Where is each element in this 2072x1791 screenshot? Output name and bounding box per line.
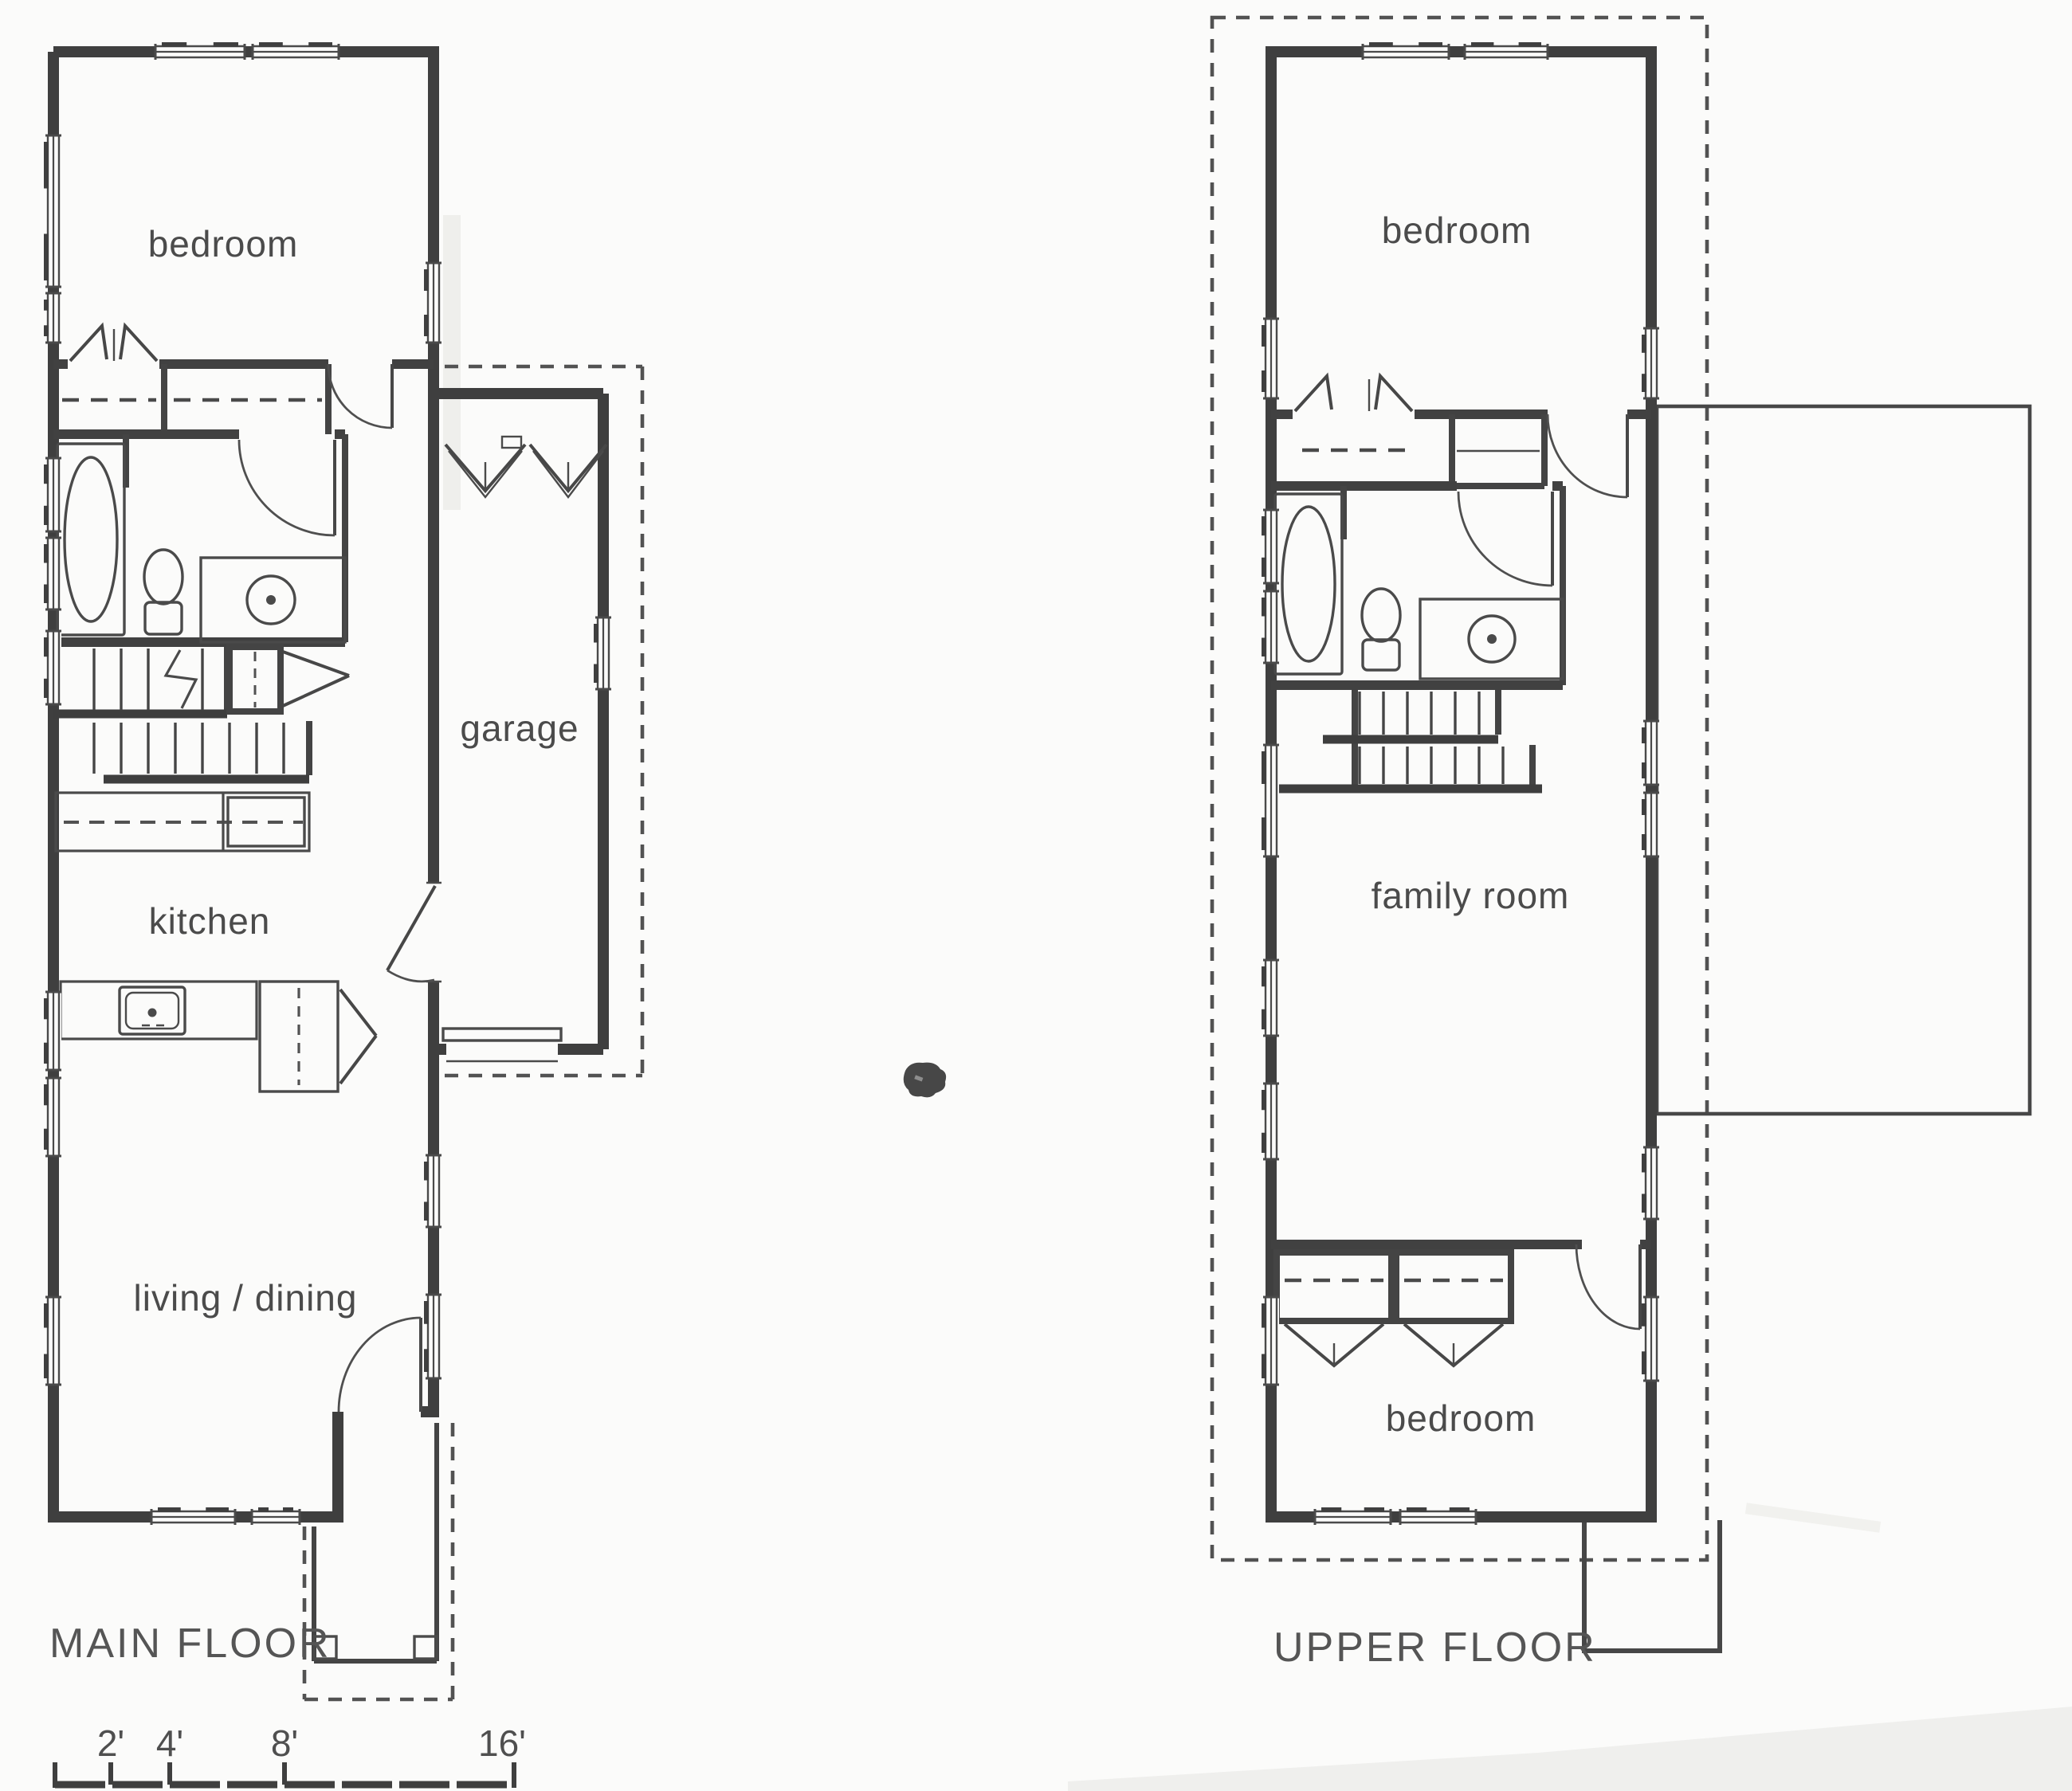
kitchen-counter	[56, 793, 309, 851]
upper-bedroom-top-label: bedroom	[1382, 210, 1532, 251]
upper-floor-title: UPPER FLOOR	[1273, 1624, 1597, 1671]
scale-tick-8ft: 8'	[271, 1722, 298, 1764]
sink-drain	[266, 595, 276, 605]
bathroom-door-swing	[239, 440, 335, 535]
floor-plan-drawing: bedroom kitchen living / dining garage M…	[0, 0, 2072, 1791]
faucet	[148, 1009, 157, 1017]
toilet-tank	[145, 602, 182, 634]
upper-bathroom-door-swing	[1458, 492, 1552, 586]
toilet-bowl	[144, 550, 182, 604]
porch-post	[414, 1636, 437, 1659]
upper-bathroom-fixtures	[1275, 494, 1563, 679]
stair-pantry	[230, 647, 349, 711]
scale-tick-16ft: 16'	[478, 1722, 526, 1764]
garage-bifold-doors	[445, 437, 606, 497]
garage-entry-door	[387, 883, 441, 982]
family-closets	[1277, 1252, 1511, 1366]
main-bedroom-label: bedroom	[148, 223, 299, 265]
floor-plan-sheet: bedroom kitchen living / dining garage M…	[0, 0, 2072, 1791]
bifold-closet-doors	[1295, 376, 1412, 411]
scale-bar: 2' 4' 8' 16'	[55, 1722, 526, 1788]
bathtub-basin	[65, 457, 117, 621]
toilet-tank	[1363, 640, 1399, 670]
toilet-bowl	[1362, 589, 1400, 641]
bathtub	[57, 444, 124, 635]
family-room-label: family room	[1372, 875, 1570, 916]
lower-bedroom-door-swing	[1576, 1244, 1640, 1329]
upper-stairs	[1271, 690, 1542, 789]
bathroom-fixtures	[57, 444, 345, 642]
scan-streak	[443, 215, 461, 510]
main-floor-title: MAIN FLOOR	[49, 1621, 332, 1667]
scale-tick-2ft: 2'	[97, 1722, 124, 1764]
sink-drain	[1487, 634, 1497, 644]
garage-label: garage	[460, 707, 579, 749]
front-door-swing	[339, 1318, 421, 1412]
main-floor-plan: bedroom kitchen living / dining garage M…	[45, 44, 642, 1699]
hall-door-swing	[328, 364, 392, 428]
kitchen-island	[61, 982, 257, 1039]
kitchen-pantry-cabinet	[260, 982, 376, 1091]
stair-break-line	[166, 650, 196, 708]
upper-floor-plan: bedroom family room bedroom UPPER FLOOR	[1212, 18, 2030, 1671]
scan-shadow	[1068, 1707, 2072, 1791]
linen-closet	[1452, 414, 1544, 486]
scale-tick-4ft: 4'	[156, 1722, 183, 1764]
upper-bedroom-bottom-label: bedroom	[1386, 1397, 1536, 1439]
kitchen-label: kitchen	[149, 900, 271, 942]
bathtub	[1275, 494, 1342, 674]
refrigerator	[228, 798, 304, 846]
bifold-closet-doors	[1285, 1324, 1503, 1366]
bathtub-basin	[1282, 507, 1335, 661]
living-dining-label: living / dining	[134, 1277, 358, 1319]
bifold-closet-doors	[70, 326, 157, 361]
porch-roof-outline	[1584, 1520, 1720, 1651]
ink-blob-artifact	[904, 1063, 946, 1098]
garage-roof-outline	[1657, 406, 2030, 1114]
scan-smudge	[1745, 1503, 1881, 1533]
scan-artifacts	[443, 215, 2072, 1791]
garage-vehicle-door	[443, 1029, 561, 1041]
